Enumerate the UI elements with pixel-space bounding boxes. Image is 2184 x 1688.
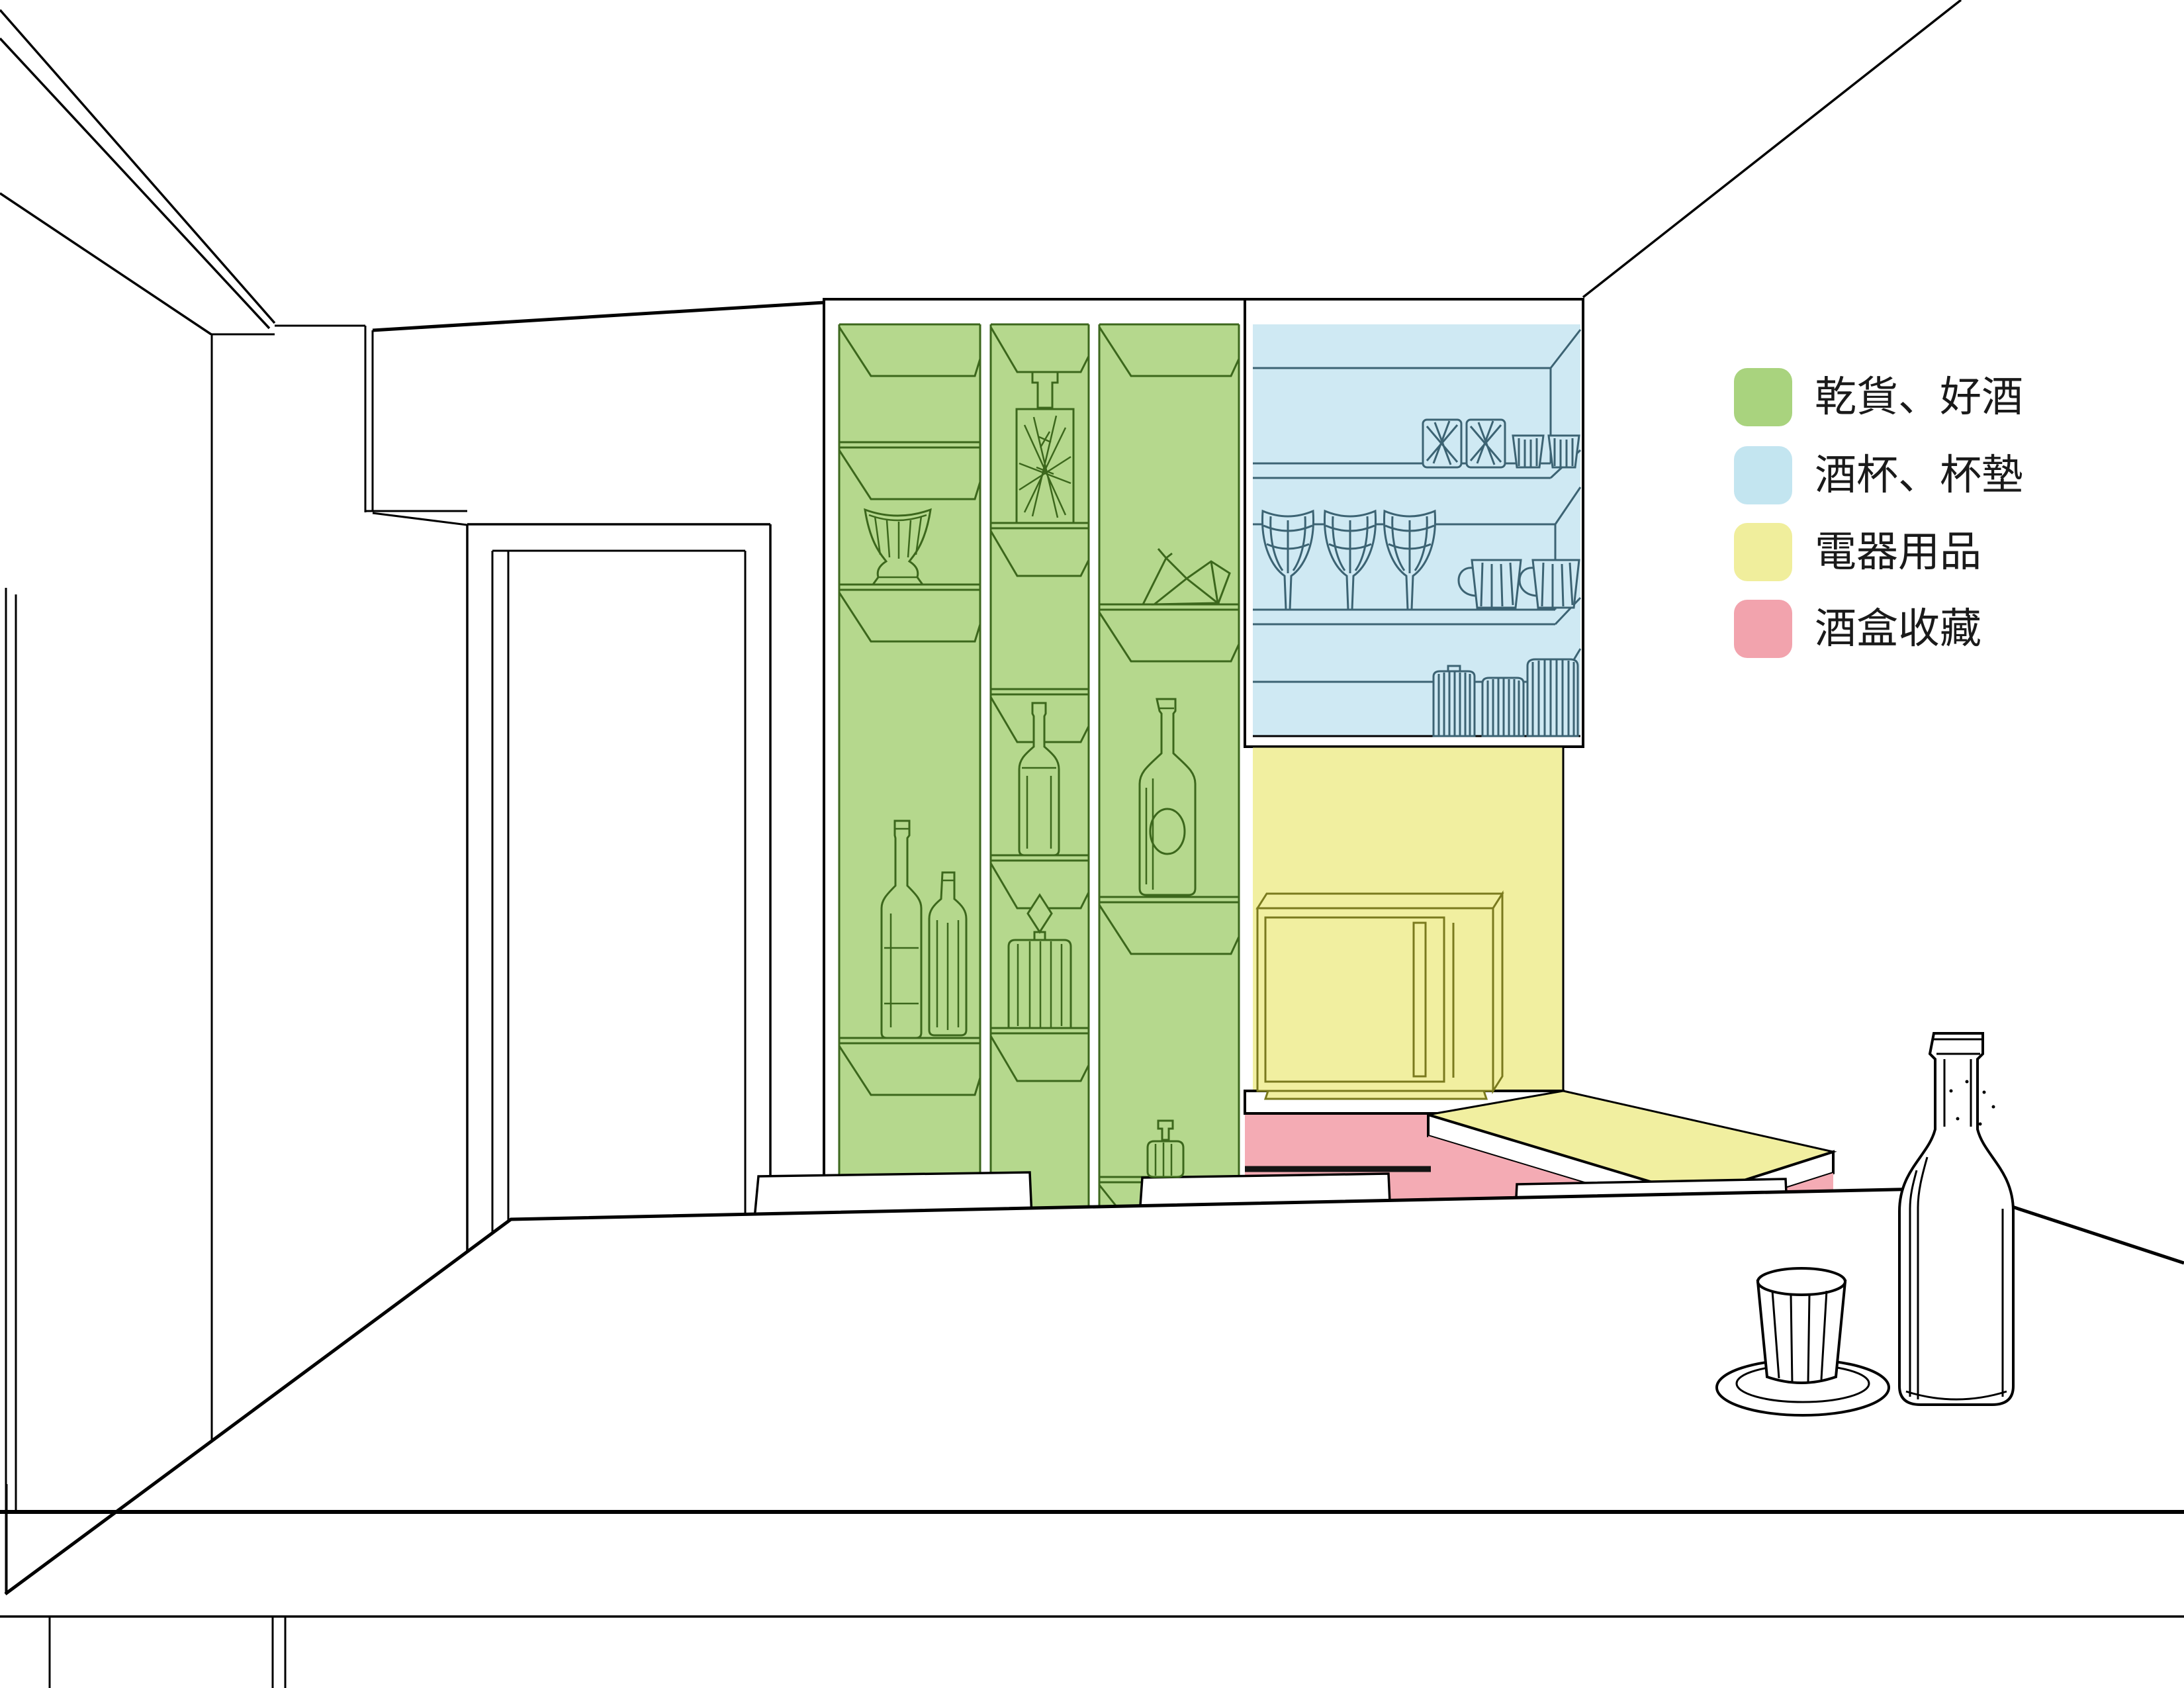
- legend-label-appliances: 電器用品: [1815, 529, 1981, 575]
- legend-swatch-dry-goods: [1734, 368, 1792, 426]
- legend-swatch-wine-boxes: [1734, 600, 1792, 658]
- legend-swatch-appliances: [1734, 523, 1792, 581]
- blue-glass-cabinet: [1245, 299, 1583, 747]
- green-column-left: [839, 324, 980, 1225]
- legend-label-wine-boxes: 酒盒收藏: [1815, 606, 1981, 652]
- faceted-cup: [1758, 1282, 1845, 1383]
- green-shelving-unit: [824, 299, 1254, 1226]
- legend-label-dry-goods: 乾貨、好酒: [1815, 374, 2023, 420]
- legend-swatch-glasses: [1734, 446, 1792, 504]
- interior-zoning-diagram: 乾貨、好酒 酒杯、杯墊 電器用品 酒盒收藏: [0, 0, 2184, 1688]
- microwave-oven: [1257, 894, 1502, 1099]
- legend-label-glasses: 酒杯、杯墊: [1815, 452, 2023, 498]
- wine-glasses: [1262, 511, 1435, 610]
- cup-rim: [1758, 1268, 1845, 1295]
